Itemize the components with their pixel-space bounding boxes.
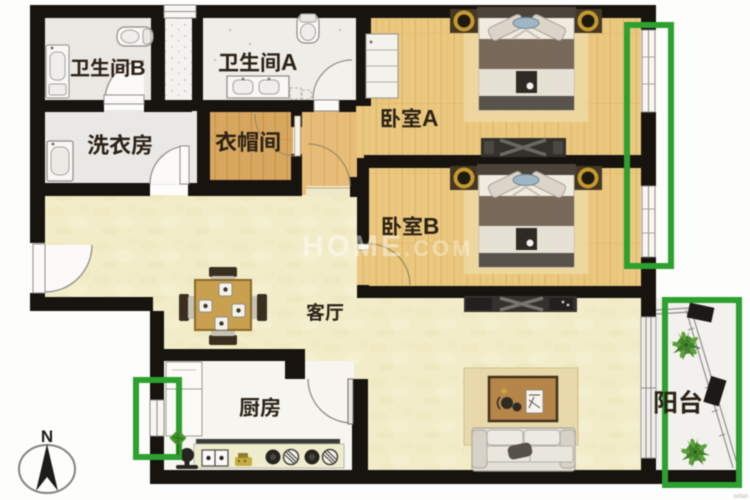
svg-text:B: B (130, 55, 146, 80)
svg-text:A: A (281, 49, 297, 75)
svg-text:A: A (422, 105, 438, 131)
svg-text:sofan: sofan (733, 494, 748, 500)
svg-text:N: N (41, 427, 53, 446)
